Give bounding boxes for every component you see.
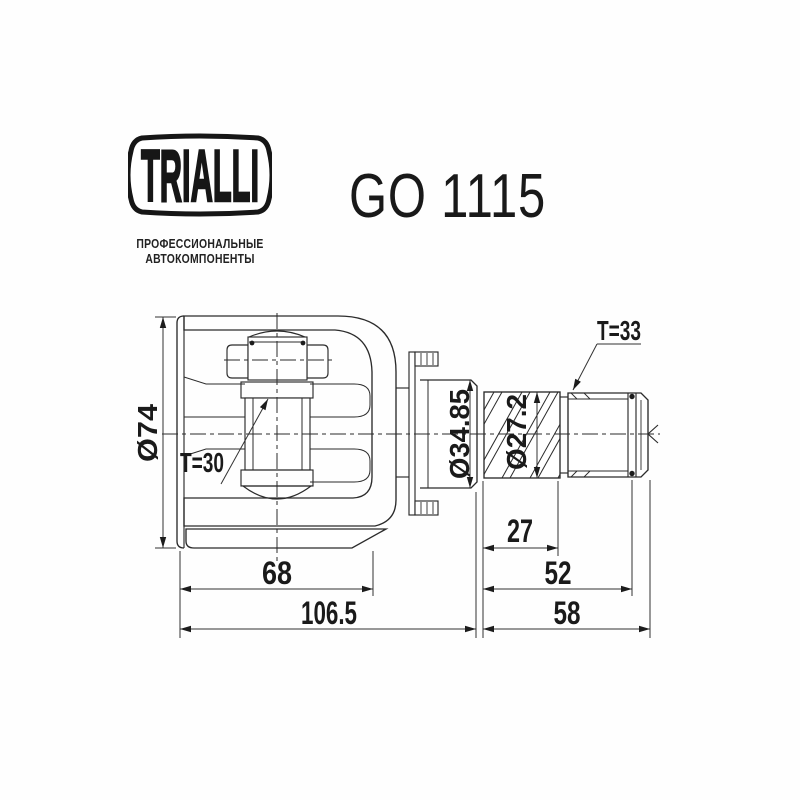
label-housing-diameter: Ø74 <box>132 404 163 462</box>
dim-overall-length: 106.5 <box>301 595 357 631</box>
housing-open-face <box>177 316 184 548</box>
label-shaft-spline-diameter: Ø27.2 <box>501 394 532 470</box>
catalog-image: TRIALLI ПРОФЕССИОНАЛЬНЫЕ АВТОКОМПОНЕНТЫ … <box>0 0 800 800</box>
label-seal-seat-diameter: Ø34.85 <box>444 389 475 479</box>
groove-dot-top <box>629 394 634 399</box>
needle-bearing-right <box>307 345 328 378</box>
dim-shaft-length: 58 <box>554 595 581 631</box>
label-outer-teeth: T=33 <box>597 315 641 346</box>
technical-drawing: 68 106.5 27 52 58 T=30 T=33 Ø74 Ø34.85 Ø… <box>0 0 800 800</box>
dust-shield-cap-top <box>415 352 438 366</box>
label-inner-teeth: T=30 <box>180 447 224 478</box>
dim-groove-position: 52 <box>545 555 572 591</box>
retainer-dot-left <box>250 341 255 346</box>
needle-bearing-left <box>227 345 248 378</box>
dim-housing-length: 68 <box>262 555 292 591</box>
dim-spline-length: 27 <box>507 513 533 549</box>
housing-bottom-rim <box>186 529 386 548</box>
retainer-dot-right <box>301 341 306 346</box>
groove-dot-bottom <box>629 471 634 476</box>
dust-shield-cap-bottom <box>415 501 438 515</box>
